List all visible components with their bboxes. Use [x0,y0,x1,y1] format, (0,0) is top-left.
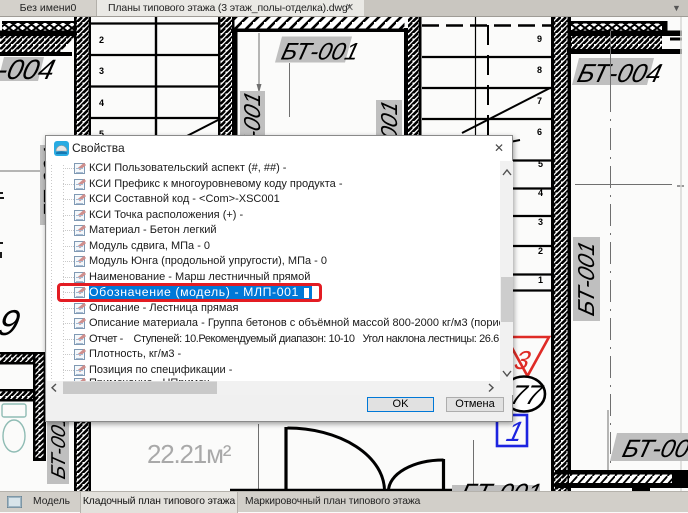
svg-text:3: 3 [538,217,543,227]
svg-text:БТ-004: БТ-004 [575,58,665,88]
svg-text:8: 8 [537,65,542,75]
svg-text:7: 7 [537,96,542,106]
svg-text:3: 3 [99,66,104,76]
svg-text:4: 4 [99,98,104,108]
svg-text:22.21м²: 22.21м² [147,439,232,469]
svg-text:БТ-001: БТ-001 [48,412,70,481]
svg-text:1: 1 [538,275,543,285]
svg-text:БТ-00: БТ-00 [620,435,688,463]
svg-text:4: 4 [538,188,543,198]
svg-text:БТ-001: БТ-001 [573,238,599,318]
svg-text:6: 6 [537,127,542,137]
svg-text:БТ-001: БТ-001 [279,39,362,66]
svg-text:5: 5 [538,159,543,169]
svg-text:9: 9 [537,34,542,44]
svg-text:2: 2 [538,246,543,256]
svg-text:2: 2 [99,35,104,45]
svg-text:-004: -004 [0,54,58,86]
